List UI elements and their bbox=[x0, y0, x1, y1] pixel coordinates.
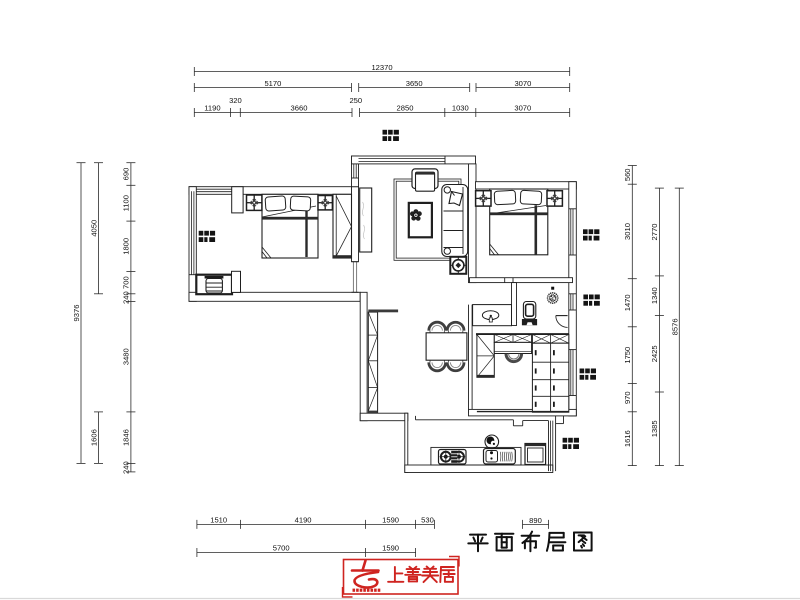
svg-text:1616: 1616 bbox=[623, 430, 632, 447]
svg-text:1100: 1100 bbox=[122, 195, 131, 211]
svg-text:1750: 1750 bbox=[623, 347, 632, 364]
svg-text:1590: 1590 bbox=[382, 544, 399, 553]
svg-text:5700: 5700 bbox=[273, 544, 290, 553]
svg-text:3070: 3070 bbox=[514, 103, 531, 112]
svg-text:560: 560 bbox=[623, 168, 632, 181]
svg-text:1030: 1030 bbox=[452, 103, 469, 112]
svg-text:1846: 1846 bbox=[122, 429, 131, 446]
svg-text:1606: 1606 bbox=[90, 429, 99, 446]
svg-text:4050: 4050 bbox=[90, 220, 99, 237]
svg-text:240: 240 bbox=[122, 461, 131, 474]
svg-text:1590: 1590 bbox=[382, 516, 399, 525]
svg-text:3480: 3480 bbox=[122, 348, 131, 365]
svg-text:1470: 1470 bbox=[623, 294, 632, 311]
svg-text:530: 530 bbox=[421, 516, 434, 525]
svg-text:250: 250 bbox=[349, 96, 362, 105]
svg-text:240: 240 bbox=[122, 291, 131, 304]
svg-text:690: 690 bbox=[122, 168, 131, 181]
svg-text:970: 970 bbox=[623, 391, 632, 404]
svg-text:2770: 2770 bbox=[650, 224, 659, 241]
svg-text:2850: 2850 bbox=[397, 103, 414, 112]
svg-text:9376: 9376 bbox=[72, 305, 81, 322]
svg-text:320: 320 bbox=[229, 96, 242, 105]
svg-text:1190: 1190 bbox=[204, 103, 220, 112]
svg-text:4190: 4190 bbox=[295, 516, 312, 525]
svg-text:8576: 8576 bbox=[671, 318, 680, 335]
svg-text:700: 700 bbox=[122, 276, 131, 289]
svg-text:1510: 1510 bbox=[210, 516, 227, 525]
svg-text:1800: 1800 bbox=[122, 238, 131, 255]
svg-text:2425: 2425 bbox=[650, 345, 659, 362]
svg-text:12370: 12370 bbox=[371, 63, 392, 72]
svg-text:3070: 3070 bbox=[514, 79, 531, 88]
svg-text:890: 890 bbox=[529, 516, 542, 525]
svg-text:3650: 3650 bbox=[406, 79, 423, 88]
svg-text:3010: 3010 bbox=[623, 223, 632, 240]
svg-text:3660: 3660 bbox=[291, 103, 308, 112]
svg-text:5170: 5170 bbox=[264, 79, 281, 88]
svg-text:1385: 1385 bbox=[650, 420, 659, 437]
svg-text:1340: 1340 bbox=[650, 287, 659, 304]
